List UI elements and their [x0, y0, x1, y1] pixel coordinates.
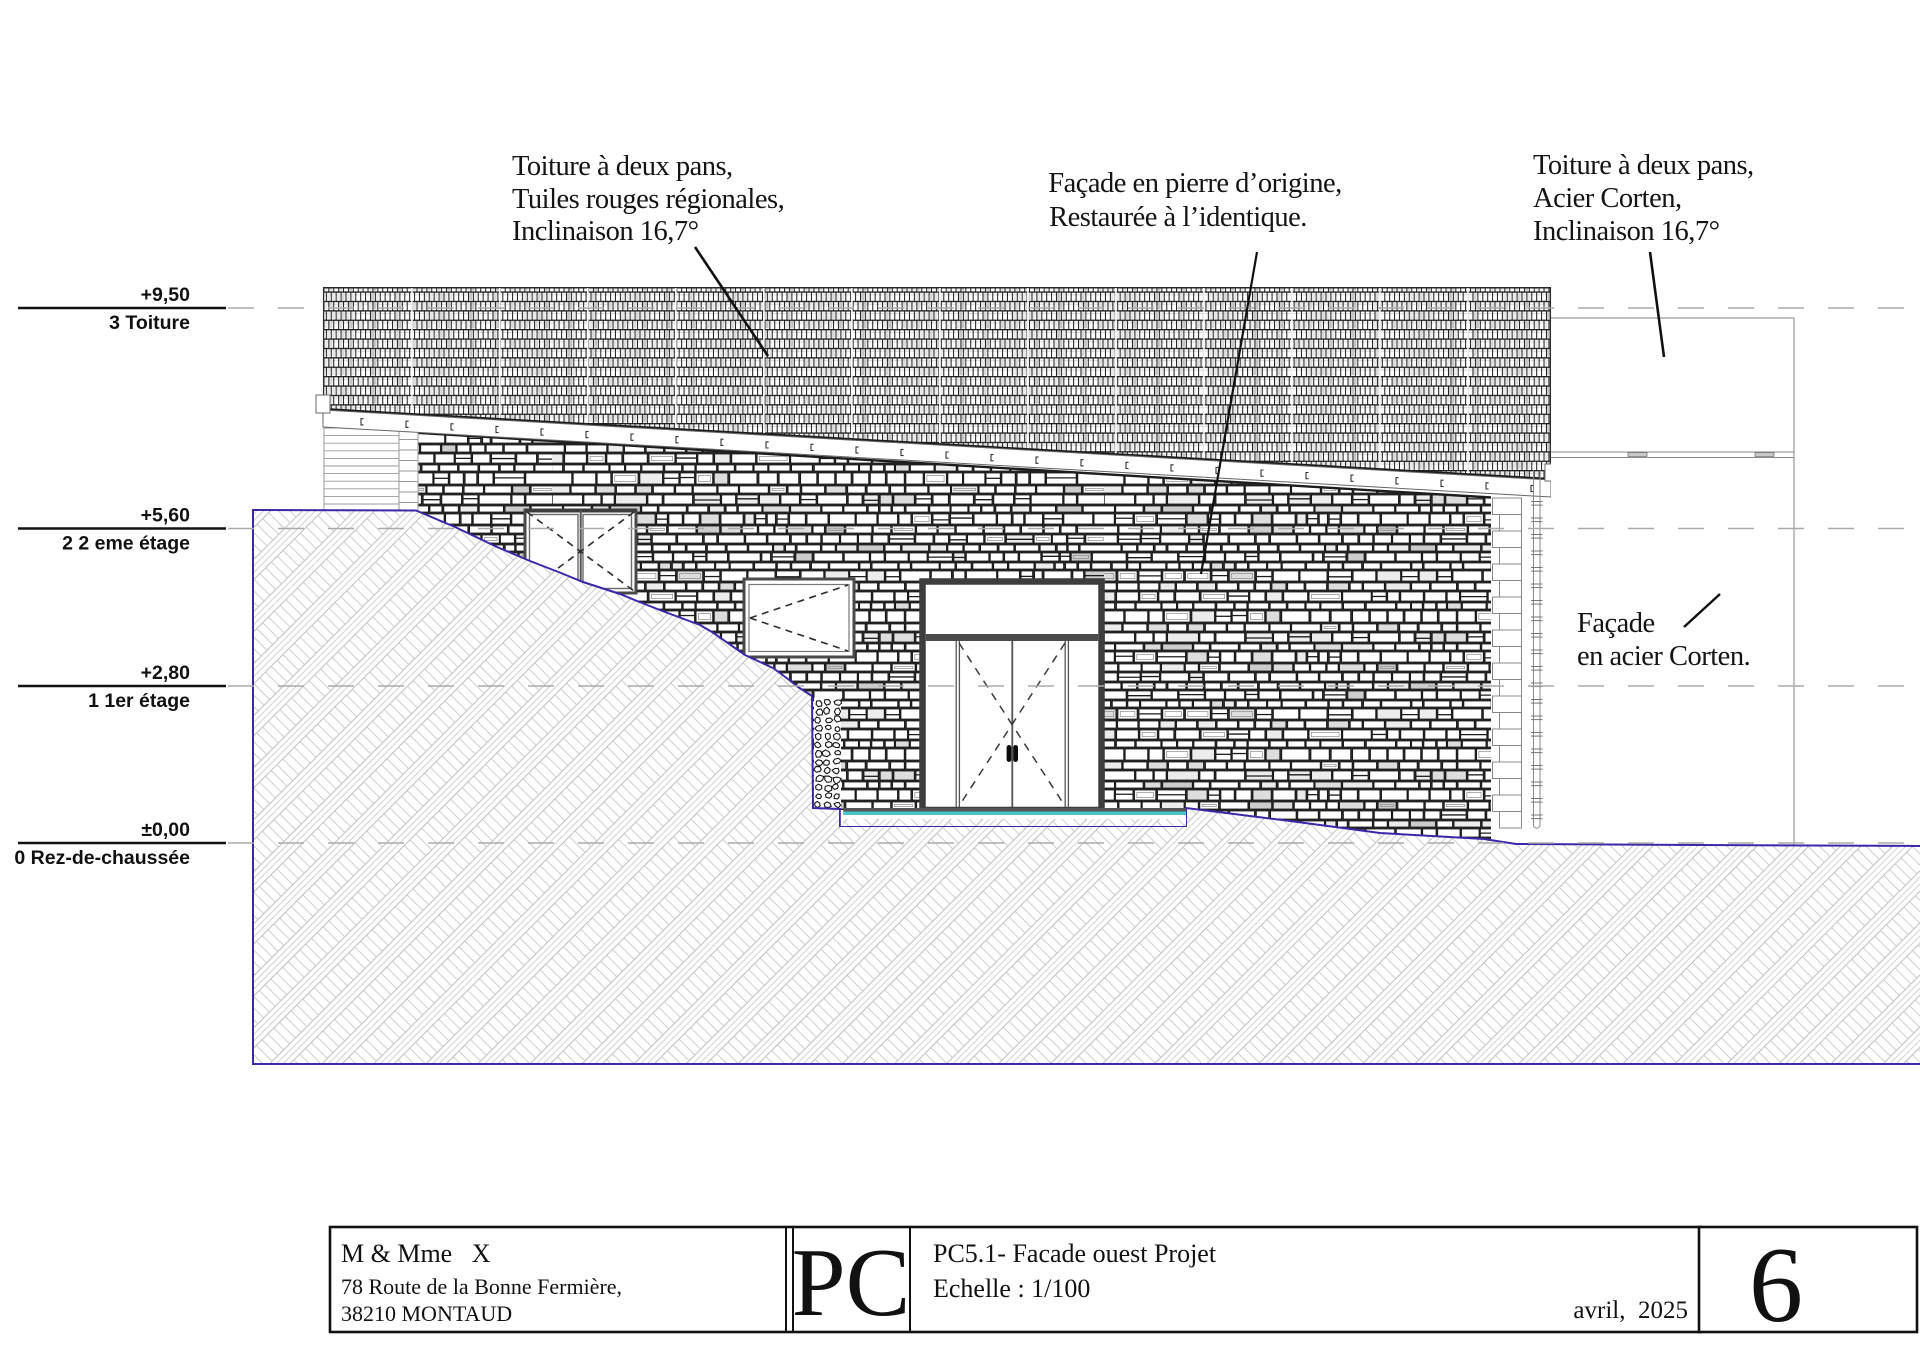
- svg-text:Toiture à deux pans,: Toiture à deux pans,: [1533, 150, 1754, 181]
- svg-text:±0,00: ±0,00: [141, 819, 190, 841]
- svg-text:Inclinaison 16,7°: Inclinaison 16,7°: [1533, 216, 1720, 247]
- svg-text:1 1er étage: 1 1er étage: [88, 690, 190, 712]
- svg-text:+9,50: +9,50: [141, 284, 190, 306]
- svg-text:Tuiles rouges régionales,: Tuiles rouges régionales,: [512, 184, 784, 215]
- svg-text:Toiture à deux pans,: Toiture à deux pans,: [512, 151, 733, 182]
- svg-text:+5,60: +5,60: [141, 505, 190, 527]
- svg-text:PC5.1- Facade ouest Projet: PC5.1- Facade ouest Projet: [933, 1239, 1217, 1268]
- svg-text:38210 MONTAUD: 38210 MONTAUD: [341, 1301, 512, 1326]
- svg-text:6: 6: [1749, 1226, 1803, 1345]
- svg-text:Echelle : 1/100: Echelle : 1/100: [933, 1274, 1090, 1303]
- svg-text:Inclinaison 16,7°: Inclinaison 16,7°: [512, 216, 699, 247]
- svg-text:en acier Corten.: en acier Corten.: [1577, 641, 1750, 672]
- svg-text:avril, 2025: avril, 2025: [1573, 1297, 1688, 1324]
- svg-text:78 Route de la Bonne Fermière,: 78 Route de la Bonne Fermière,: [341, 1274, 622, 1299]
- svg-text:Restaurée à l’identique.: Restaurée à l’identique.: [1049, 202, 1307, 233]
- svg-text:Acier Corten,: Acier Corten,: [1533, 183, 1682, 214]
- svg-text:+2,80: +2,80: [141, 662, 190, 684]
- svg-text:M & Mme X: M & Mme X: [341, 1239, 491, 1268]
- svg-text:3 Toiture: 3 Toiture: [109, 312, 190, 334]
- svg-text:PC: PC: [792, 1229, 911, 1336]
- svg-text:0 Rez-de-chaussée: 0 Rez-de-chaussée: [14, 847, 190, 869]
- svg-text:Façade: Façade: [1577, 608, 1655, 639]
- svg-text:2 2 eme étage: 2 2 eme étage: [62, 533, 190, 555]
- svg-text:Façade en pierre d’origine,: Façade en pierre d’origine,: [1048, 168, 1342, 199]
